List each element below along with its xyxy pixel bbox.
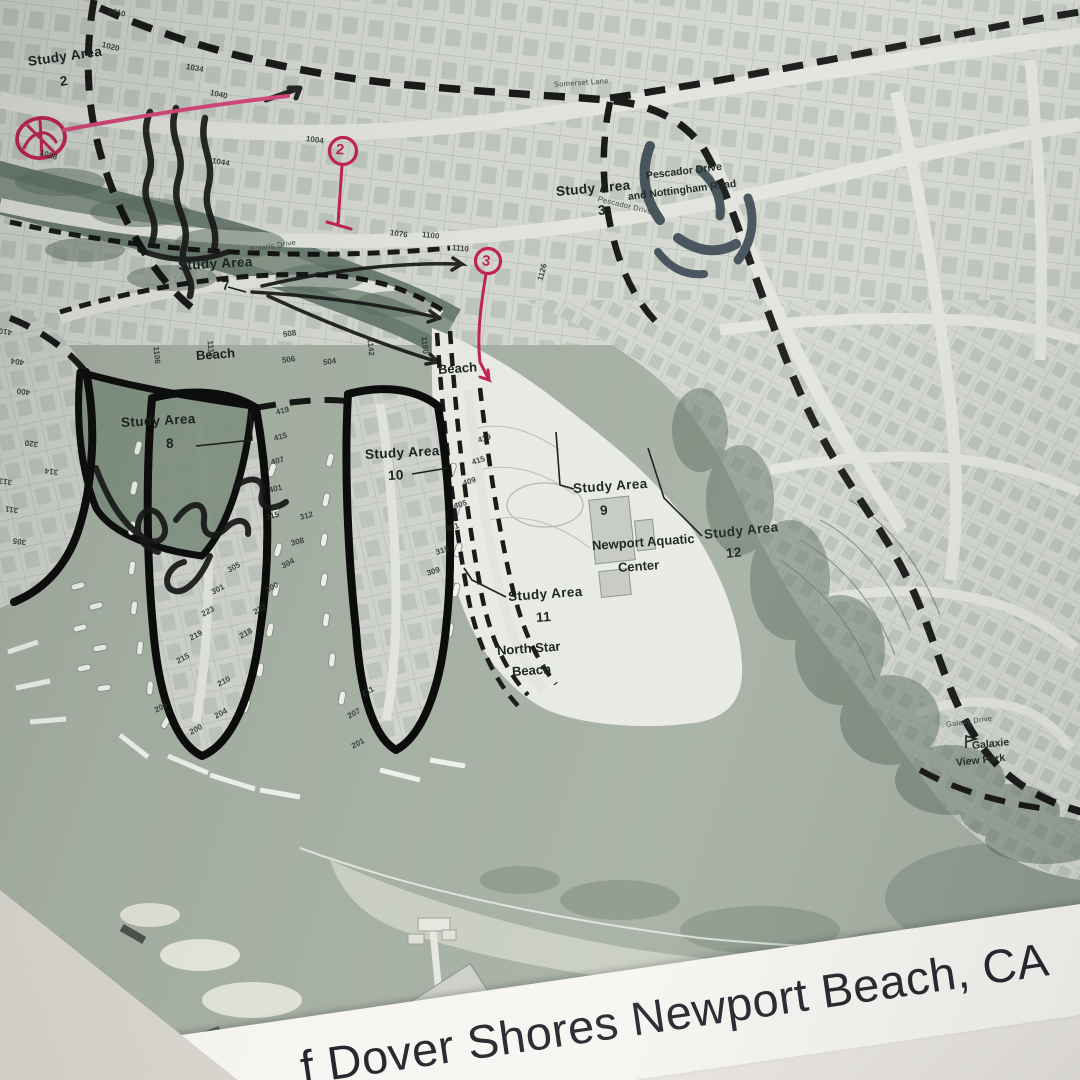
lot-number: 200 (188, 722, 204, 736)
lot-number: 1100 (422, 230, 440, 241)
street-galaxy-drive: Galaxy Drive (945, 714, 992, 729)
lot-number: 204 (213, 706, 229, 720)
lot-number: 1004 (305, 134, 324, 145)
lot-number: 311 (5, 504, 19, 515)
lot-number: 315 (265, 510, 280, 522)
photo-of-printed-map: Study Area 2 Study Area 3 Study Area 7 S… (0, 0, 1080, 1080)
lot-number: 1076 (389, 228, 408, 239)
study-area-8-label: Study Area (121, 411, 196, 430)
lot-number: 312 (299, 510, 314, 522)
map-page: Study Area 2 Study Area 3 Study Area 7 S… (0, 0, 1080, 1080)
lot-number: 1020 (101, 40, 120, 53)
lot-number: 400 (16, 386, 30, 397)
lot-number: 300 (264, 580, 280, 594)
lot-number: 201 (350, 736, 366, 750)
lot-number: 308 (290, 536, 305, 548)
lot-number: 210 (216, 674, 232, 688)
lot-number: 1010 (107, 6, 126, 19)
aquatic-center-label-2: Center (617, 557, 659, 575)
lot-number: 405 (453, 498, 468, 511)
lot-number: 1112 (206, 340, 216, 358)
lot-number: 1106 (152, 346, 162, 364)
lot-number: 207 (346, 706, 362, 720)
street-polaris-drive: Polaris Drive (249, 238, 296, 254)
north-star-beach-label-2: Beach (511, 661, 551, 679)
study-area-3-label: Study Area (555, 178, 631, 199)
lot-number: 407 (270, 455, 285, 467)
lot-number: 504 (322, 356, 336, 367)
lot-number: 1126 (536, 263, 549, 282)
north-star-beach-label-1: North Star (496, 639, 560, 658)
lot-number: 305 (12, 536, 26, 547)
red-pin-2-number: 2 (335, 141, 345, 159)
red-pin-3-number: 3 (481, 252, 492, 270)
lot-number: 222 (252, 602, 268, 616)
lot-number: 1040 (209, 88, 228, 101)
lot-number: 1150 (420, 336, 430, 354)
lot-number: 401 (268, 483, 283, 495)
study-area-9-number: 9 (599, 502, 608, 518)
lot-number: 304 (280, 556, 296, 570)
lot-number: 419 (477, 432, 492, 445)
galaxie-view-park-label-2: View Park (955, 752, 1005, 769)
lot-number: 301 (210, 582, 226, 596)
study-area-10-number: 10 (388, 467, 405, 483)
beach-label-center: Beach (437, 359, 477, 377)
lot-number: 506 (281, 354, 295, 365)
lot-number: 219 (188, 628, 204, 642)
pescador-note-label-2: and Nottingham Road (627, 178, 737, 203)
map-labels: Study Area 2 Study Area 3 Study Area 7 S… (0, 0, 1080, 1080)
study-area-12-number: 12 (725, 544, 742, 561)
study-area-11-label: Study Area (507, 584, 583, 604)
lot-number: 218 (238, 626, 254, 640)
lot-number: 223 (200, 604, 216, 618)
lot-number: 1034 (185, 62, 204, 74)
lot-number: 211 (360, 684, 376, 698)
lot-number: 1028 (39, 148, 59, 162)
galaxie-view-park-label-1: Galaxie (971, 736, 1009, 752)
lot-number: 1044 (211, 156, 230, 168)
pescador-note-label-1: Pescador Drive (645, 161, 722, 182)
lot-number: 415 (471, 454, 486, 467)
aquatic-center-label-1: Newport Aquatic (591, 531, 695, 553)
study-area-7-number: 7 (222, 278, 231, 293)
lot-number: 419 (275, 405, 290, 417)
lot-number: 410 (0, 326, 13, 337)
lot-number: 305 (226, 560, 242, 574)
study-area-2-label: Study Area (27, 44, 103, 69)
study-area-11-number: 11 (535, 609, 551, 625)
study-area-2-number: 2 (59, 73, 69, 89)
lot-number: 415 (273, 431, 288, 443)
lot-number: 508 (282, 328, 296, 339)
lot-number: 320 (24, 438, 38, 449)
lot-number: 401 (445, 521, 460, 534)
lot-number: 314 (44, 466, 58, 477)
lot-number: 409 (462, 475, 477, 488)
lot-number: 309 (426, 565, 441, 578)
study-area-12-label: Study Area (703, 519, 779, 542)
study-area-10-label: Study Area (365, 443, 440, 462)
lot-number: 315 (435, 544, 450, 557)
lot-number: 215 (175, 651, 191, 665)
lot-number: 1110 (452, 243, 470, 254)
study-area-8-number: 8 (166, 436, 175, 451)
study-area-7-label: Study Area (178, 254, 253, 273)
lot-number: 205 (153, 700, 169, 714)
lot-number: 313 (0, 476, 13, 487)
study-area-9-label: Study Area (572, 476, 648, 496)
street-somerset-lane: Somerset Lane (554, 76, 609, 89)
lot-number: 404 (10, 356, 24, 367)
lot-number: 1142 (366, 338, 376, 356)
